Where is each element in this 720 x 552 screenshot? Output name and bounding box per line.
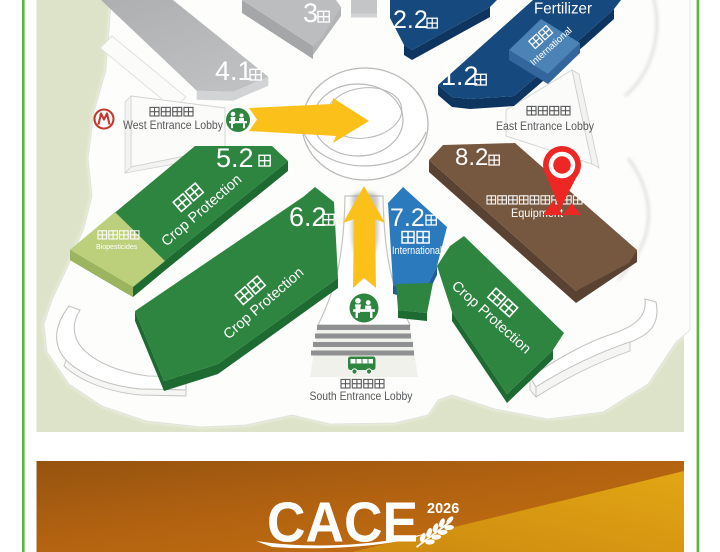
- svg-text:West Entrance Lobby: West Entrance Lobby: [123, 118, 223, 132]
- svg-text:International: International: [392, 245, 442, 257]
- svg-text:6.2: 6.2: [289, 202, 327, 232]
- svg-text:5.2: 5.2: [216, 143, 254, 173]
- svg-text:Biopesticides: Biopesticides: [96, 244, 138, 251]
- svg-text:1.2: 1.2: [441, 61, 479, 91]
- svg-text:2026: 2026: [427, 501, 459, 517]
- svg-text:7.2: 7.2: [390, 204, 425, 232]
- svg-text:4.1: 4.1: [215, 56, 253, 86]
- svg-text:Fertilizer: Fertilizer: [534, 1, 593, 18]
- svg-text:East Entrance Lobby: East Entrance Lobby: [496, 119, 594, 133]
- svg-text:3: 3: [303, 0, 318, 28]
- svg-text:CACE: CACE: [267, 491, 418, 552]
- svg-text:2.2: 2.2: [393, 6, 428, 34]
- svg-text:South Entrance Lobby: South Entrance Lobby: [310, 389, 413, 403]
- svg-text:8.2: 8.2: [455, 144, 488, 171]
